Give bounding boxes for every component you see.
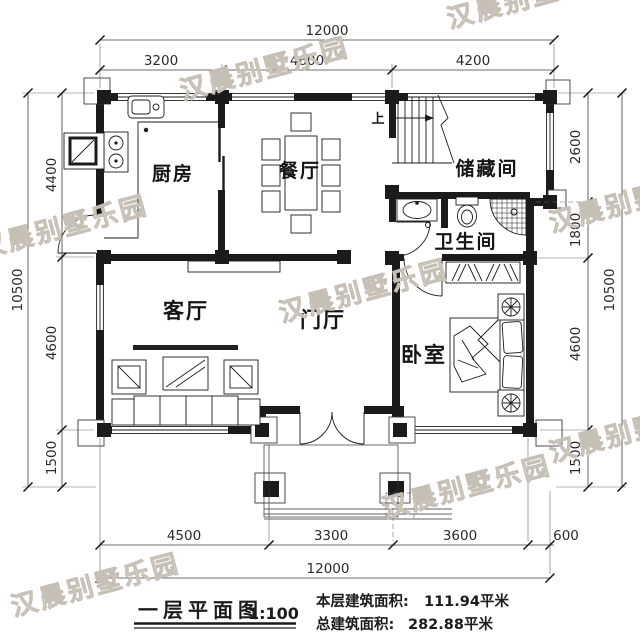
floor-area-value: 111.94平米 [424, 592, 509, 610]
total-area-value: 282.88平米 [408, 615, 493, 633]
side-table-right [224, 360, 258, 394]
dim-bottom-seg2: 3300 [314, 528, 348, 544]
room-label-bathroom: 卫生间 [434, 230, 497, 253]
window-storage-top [408, 93, 535, 101]
dim-left-seg1: 4400 [44, 158, 60, 192]
dim-right-seg1: 2600 [568, 130, 584, 164]
kitchen-sink [128, 96, 164, 118]
watermark-text: 汉晨别墅乐园 [0, 191, 152, 265]
sofa [112, 396, 260, 425]
window-dining-top-2 [352, 93, 388, 101]
dim-bottom-total: 12000 [307, 561, 350, 577]
flue-box [64, 133, 104, 169]
dim-left-seg2: 4600 [44, 326, 60, 360]
window-living-left [96, 285, 104, 330]
window-dining-top-1 [232, 93, 294, 101]
room-label-bedroom: 卧室 [401, 343, 447, 367]
wardrobe [446, 262, 520, 283]
staircase: 上 [371, 95, 454, 163]
dim-left-total: 10500 [10, 269, 26, 312]
bathroom-door [396, 222, 430, 256]
dim-bottom-seg1: 4500 [167, 528, 201, 544]
side-table-left [112, 360, 146, 394]
window-bedroom-front [414, 426, 512, 434]
room-label-storage: 储藏间 [455, 157, 518, 180]
toilet [456, 197, 478, 227]
tv-cabinet [188, 261, 280, 272]
vanity-sink [397, 199, 437, 228]
stairs-up-label: 上 [371, 112, 384, 127]
dim-left-seg3: 1500 [44, 441, 60, 475]
kitchen-stove [104, 132, 128, 172]
watermark-text: 汉晨别墅乐园 [276, 255, 452, 329]
living-room-set [112, 261, 280, 425]
dim-bottom-seg3: 3600 [443, 528, 477, 544]
dim-bottom-seg4: 600 [553, 528, 579, 544]
plan-scale: 1:100 [248, 604, 299, 623]
title-block: 一层平面图 1:100 本层建筑面积: 111.94平米 总建筑面积: 282.… [134, 592, 509, 633]
floor-plan-page: 上 [0, 0, 640, 640]
window-storage-right [546, 113, 554, 170]
dim-right-seg3: 4600 [568, 327, 584, 361]
nightstand-plant-top [498, 294, 524, 320]
dim-right-total: 10500 [602, 269, 618, 312]
total-area-label: 总建筑面积: [316, 615, 394, 633]
kitchen-sliding-door [220, 128, 224, 190]
kitchen-knob [144, 128, 148, 132]
watermark-text: 汉晨别墅乐园 [444, 0, 620, 35]
floor-area-label: 本层建筑面积: [316, 592, 409, 610]
sofa-back-table [133, 345, 238, 350]
bed [450, 318, 524, 392]
dim-top-seg1: 3200 [144, 53, 178, 69]
window-living-front [112, 426, 228, 434]
coffee-table [163, 357, 208, 390]
room-label-living: 客厅 [163, 299, 209, 323]
bedroom-set [446, 262, 524, 416]
floor-plan-drawing: 上 [0, 0, 640, 640]
room-label-dining: 餐厅 [279, 159, 321, 182]
watermark-text: 汉晨别墅乐园 [379, 451, 555, 525]
plan-title: 一层平面图 [138, 598, 263, 622]
nightstand-plant-bottom [498, 390, 524, 416]
entry-double-door [300, 412, 364, 444]
room-label-kitchen: 厨房 [152, 162, 194, 185]
dim-top-seg3: 4200 [456, 53, 490, 69]
